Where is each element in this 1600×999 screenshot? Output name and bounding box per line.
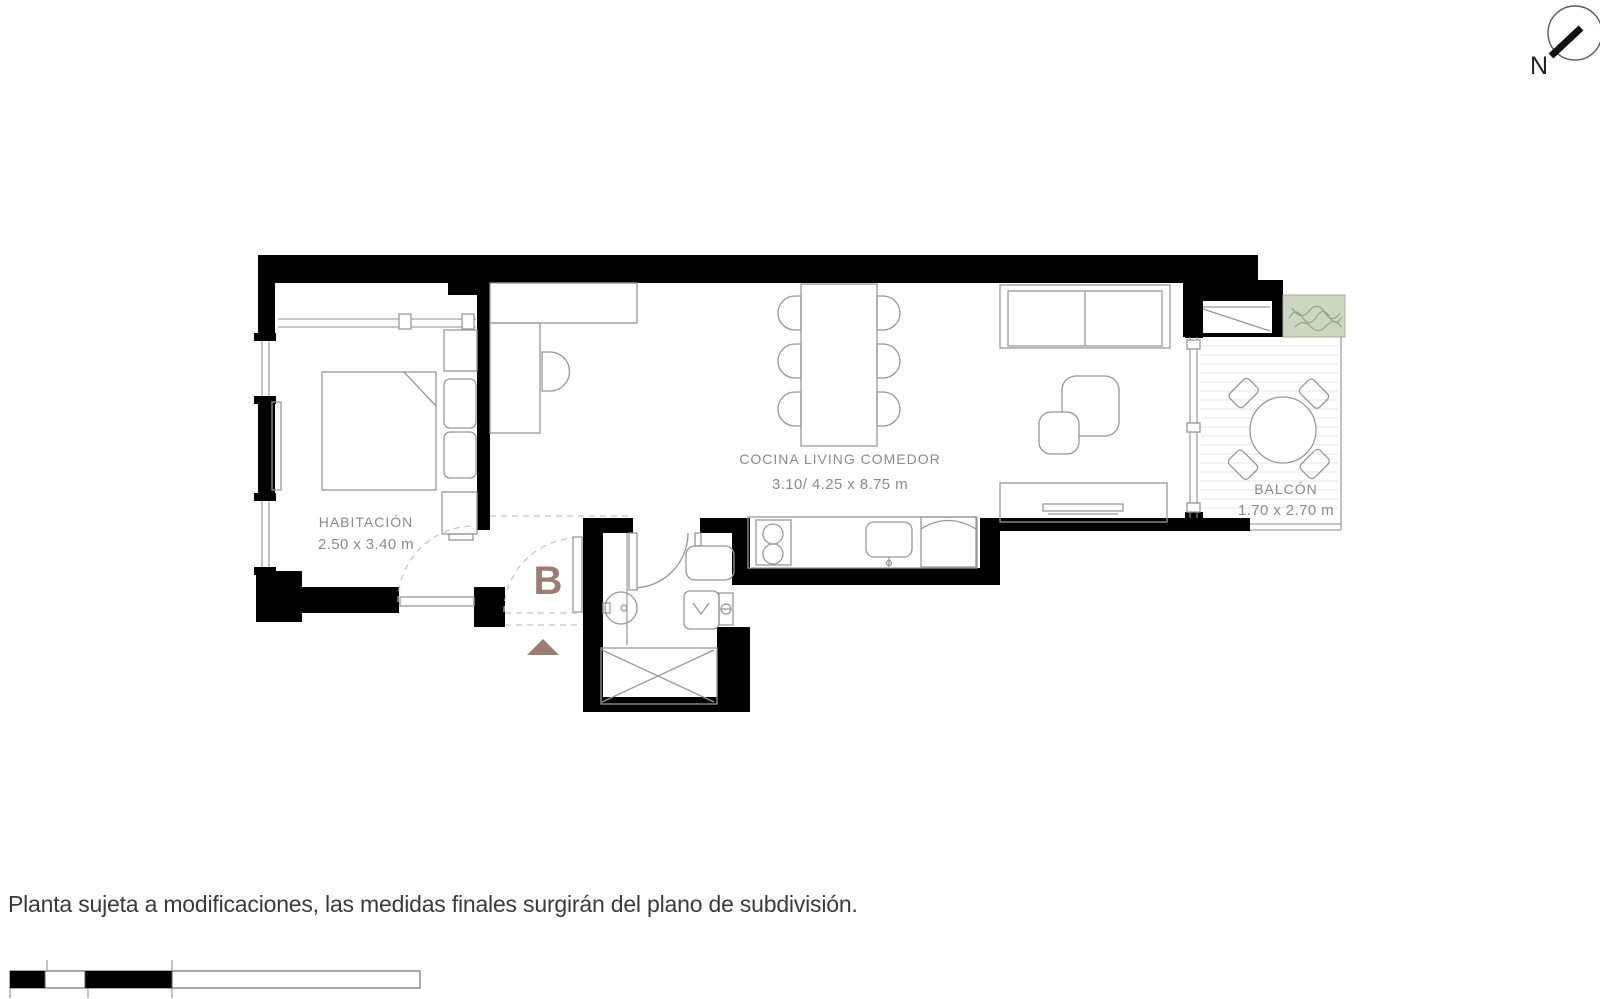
bath-cabinet [686,546,734,580]
tv [1043,504,1123,511]
north-label: N [1530,52,1548,80]
dining-set [778,284,900,446]
washbasin [603,592,637,624]
floor-plan-page: HABITACIÓN 2.50 x 3.40 m COCINA LIVING C… [0,0,1600,999]
cooktop [756,520,791,565]
scale-bar [10,960,420,998]
dining-chair [778,344,801,378]
entry-arrow-icon [527,639,559,655]
pillow [444,432,476,478]
bed [322,330,477,490]
desk [490,323,540,433]
dining-chair [877,296,900,330]
dining-chair [877,344,900,378]
dining-chair [778,392,801,426]
pillow [444,379,476,428]
room-labels: HABITACIÓN 2.50 x 3.40 m COCINA LIVING C… [318,451,1334,553]
headboard-shelf [444,330,477,371]
floor-plan-drawing: HABITACIÓN 2.50 x 3.40 m COCINA LIVING C… [0,0,1600,999]
dining-chair [877,392,900,426]
bedroom-dimensions: 2.50 x 3.40 m [318,536,414,553]
kitchen [748,517,977,568]
shower-tray [601,648,717,704]
bathroom [601,533,734,704]
disclaimer-text: Planta sujeta a modificaciones, las medi… [8,891,858,918]
kitchen-counter [748,517,977,568]
nightstand [442,492,477,540]
wall-cabinet [490,283,637,323]
balcony-chair [1227,448,1260,481]
bathroom-door [629,533,701,590]
balcony-step [1203,301,1272,333]
north-arrow: N [1530,6,1600,80]
compass-needle-icon [1551,28,1581,56]
balcony-table [1250,397,1316,463]
kitchen-sink [866,522,912,567]
bedroom-label: HABITACIÓN [319,514,414,530]
bedroom-furniture [272,314,477,540]
living-label: COCINA LIVING COMEDOR [739,451,940,467]
tv-unit [1000,483,1167,522]
desk-chair [542,352,570,391]
coffee-table-small [1039,412,1079,454]
entry-furniture [490,283,637,433]
balcony-glass-door [1187,337,1200,518]
bedroom-window-lower [262,501,269,567]
living-dimensions: 3.10/ 4.25 x 8.75 m [772,476,908,493]
balcony-label: BALCÓN [1254,481,1318,497]
unit-marker: B [527,559,562,655]
toilet [684,591,733,629]
dining-chair [778,296,801,330]
bedroom-window-upper [262,341,269,396]
living-furniture [1000,285,1170,522]
balcony-table-set [1227,377,1331,481]
closet-rail [278,314,476,329]
balcony-dimensions: 1.70 x 2.70 m [1238,502,1334,519]
sofa [1000,285,1170,348]
unit-letter: B [534,559,563,603]
fridge [921,517,976,567]
dining-table [801,284,877,446]
planter [1283,295,1345,337]
